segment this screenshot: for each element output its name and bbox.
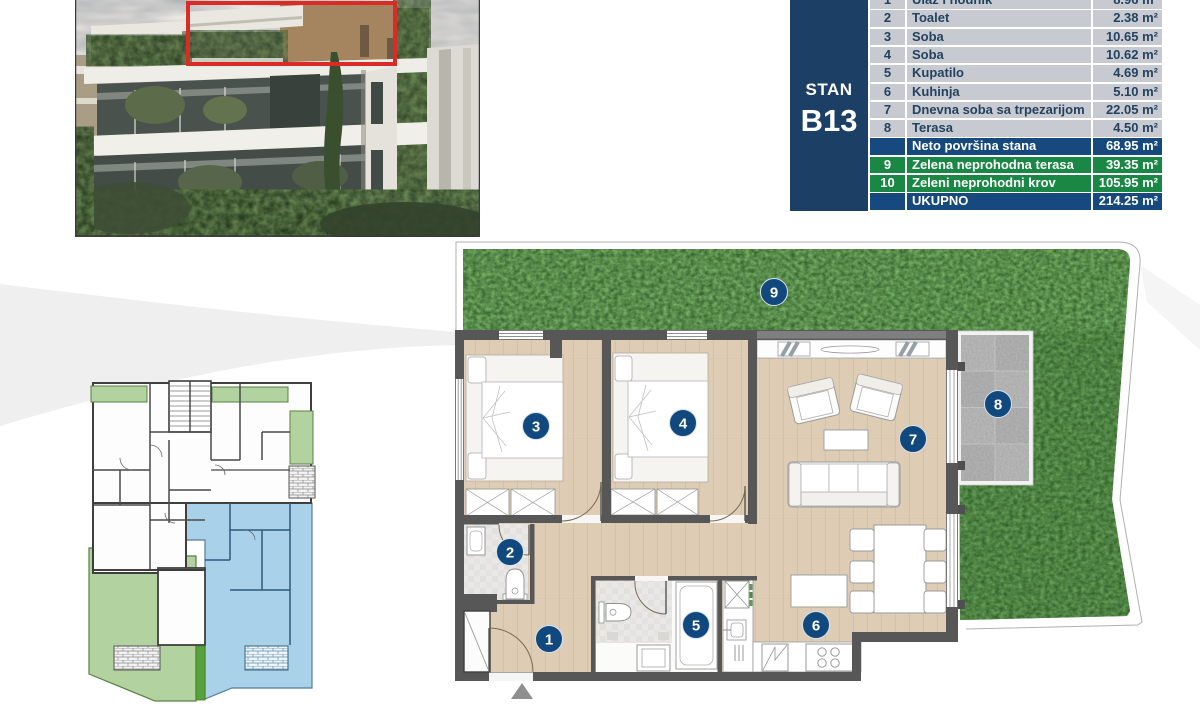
svg-text:1: 1	[545, 631, 553, 648]
svg-text:6: 6	[812, 617, 820, 634]
svg-text:5: 5	[692, 617, 700, 634]
svg-text:4: 4	[679, 415, 688, 432]
svg-text:3: 3	[532, 418, 540, 435]
svg-text:8: 8	[994, 396, 1002, 413]
svg-text:7: 7	[909, 431, 917, 448]
svg-text:9: 9	[770, 284, 778, 301]
svg-text:2: 2	[506, 544, 514, 561]
